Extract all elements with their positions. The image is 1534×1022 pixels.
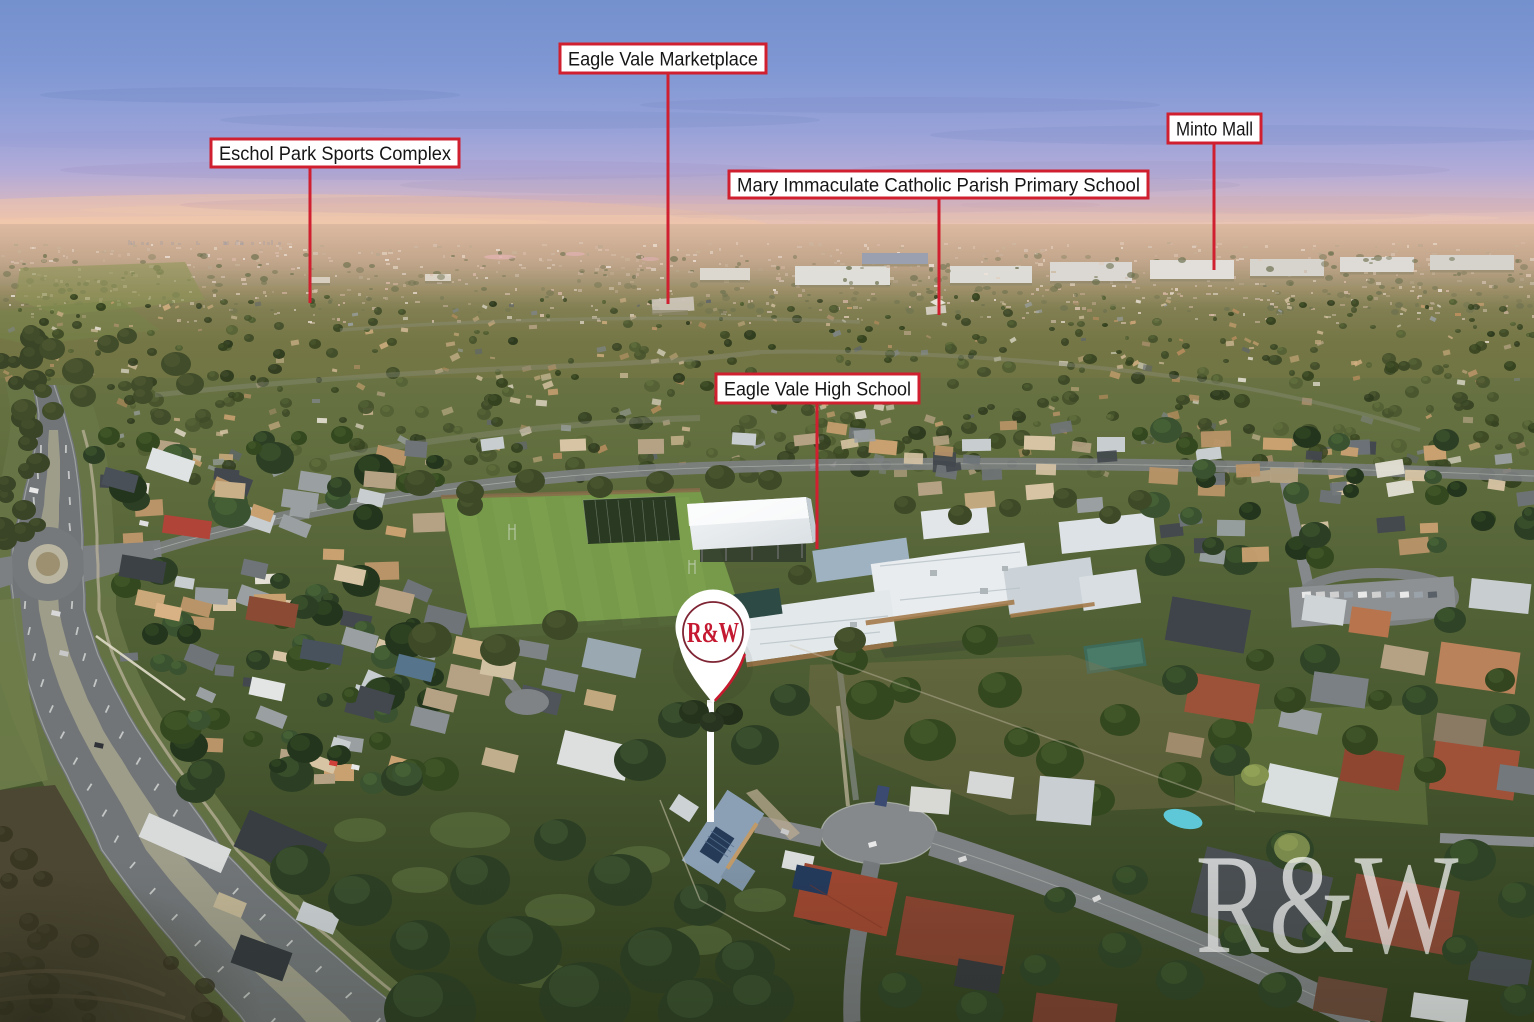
svg-text:R&W: R&W [687, 618, 739, 649]
svg-text:Eagle Vale High School: Eagle Vale High School [724, 378, 911, 400]
svg-text:Minto Mall: Minto Mall [1176, 118, 1253, 140]
svg-text:Eagle Vale Marketplace: Eagle Vale Marketplace [568, 48, 758, 70]
svg-text:Eschol Park Sports Complex: Eschol Park Sports Complex [219, 143, 451, 165]
svg-text:Mary Immaculate Catholic Paris: Mary Immaculate Catholic Parish Primary … [737, 174, 1140, 196]
